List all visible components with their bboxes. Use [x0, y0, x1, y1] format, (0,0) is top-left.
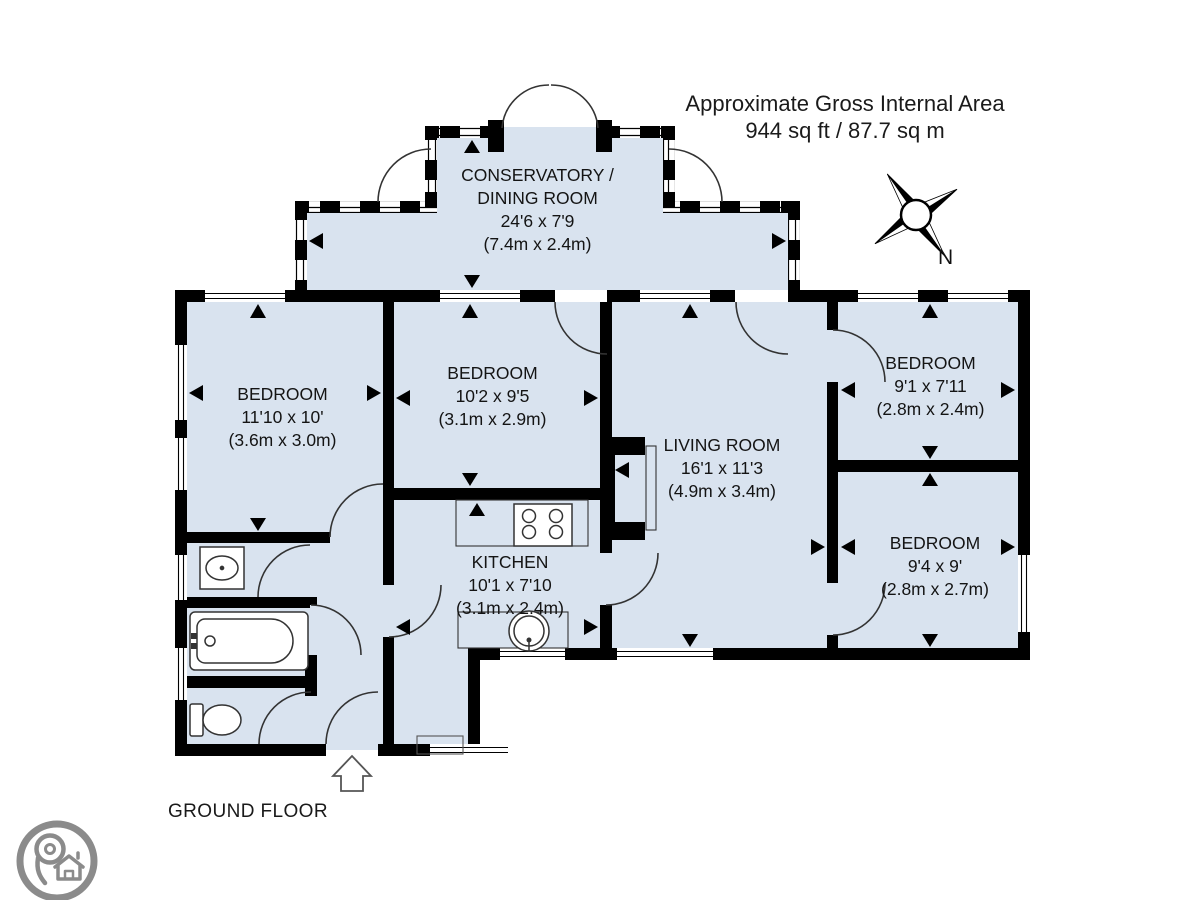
room-label-bedroom-left: BEDROOM 11'10 x 10' (3.6m x 3.0m)	[185, 383, 380, 452]
home-location-logo-icon	[20, 824, 94, 898]
entrance-arrow-icon	[333, 756, 371, 791]
room-name: BEDROOM	[833, 352, 1028, 375]
room-name: BEDROOM	[185, 383, 380, 406]
room-name: CONSERVATORY /	[395, 164, 680, 187]
toilet-icon	[190, 704, 241, 736]
room-name: KITCHEN	[412, 551, 608, 574]
room-label-conservatory-dining: CONSERVATORY / DINING ROOM 24'6 x 7'9 (7…	[395, 164, 680, 256]
room-dims-metric: (4.9m x 3.4m)	[612, 480, 832, 503]
room-dims-imperial: 16'1 x 11'3	[612, 457, 832, 480]
room-label-living-room: LIVING ROOM 16'1 x 11'3 (4.9m x 3.4m)	[612, 434, 832, 503]
gross-internal-area-title: Approximate Gross Internal Area 944 sq f…	[615, 90, 1075, 144]
conservatory-french-door-left	[502, 85, 549, 128]
room-label-bedroom-bottom-right: BEDROOM 9'4 x 9' (2.8m x 2.7m)	[836, 532, 1034, 601]
room-name: BEDROOM	[395, 362, 590, 385]
floorplan-page: Approximate Gross Internal Area 944 sq f…	[0, 0, 1200, 900]
room-dims-metric: (7.4m x 2.4m)	[395, 233, 680, 256]
bathtub-icon	[190, 612, 308, 670]
conservatory-french-door-right	[551, 85, 598, 128]
room-label-bedroom-top-right: BEDROOM 9'1 x 7'11 (2.8m x 2.4m)	[833, 352, 1028, 421]
room-dims-metric: (3.6m x 3.0m)	[185, 429, 380, 452]
room-dims-imperial: 10'2 x 9'5	[395, 385, 590, 408]
room-dims-imperial: 24'6 x 7'9	[395, 210, 680, 233]
compass-icon	[875, 174, 957, 256]
room-name: LIVING ROOM	[612, 434, 832, 457]
ground-floor-label: GROUND FLOOR	[168, 801, 328, 823]
room-name: BEDROOM	[836, 532, 1034, 555]
room-label-bedroom-middle: BEDROOM 10'2 x 9'5 (3.1m x 2.9m)	[395, 362, 590, 431]
title-line1: Approximate Gross Internal Area	[615, 90, 1075, 117]
room-name-line2: DINING ROOM	[395, 187, 680, 210]
room-dims-metric: (3.1m x 2.9m)	[395, 408, 590, 431]
room-dims-imperial: 9'1 x 7'11	[833, 375, 1028, 398]
room-label-kitchen: KITCHEN 10'1 x 7'10 (3.1m x 2.4m)	[412, 551, 608, 620]
compass-north-label: N	[938, 246, 953, 270]
room-dims-metric: (2.8m x 2.4m)	[833, 398, 1028, 421]
room-dims-metric: (3.1m x 2.4m)	[412, 597, 608, 620]
wash-basin-icon	[200, 547, 244, 589]
room-dims-imperial: 9'4 x 9'	[836, 555, 1034, 578]
title-line2: 944 sq ft / 87.7 sq m	[615, 117, 1075, 144]
room-dims-metric: (2.8m x 2.7m)	[836, 578, 1034, 601]
room-dims-imperial: 10'1 x 7'10	[412, 574, 608, 597]
room-dims-imperial: 11'10 x 10'	[185, 406, 380, 429]
hob-icon	[514, 504, 572, 546]
